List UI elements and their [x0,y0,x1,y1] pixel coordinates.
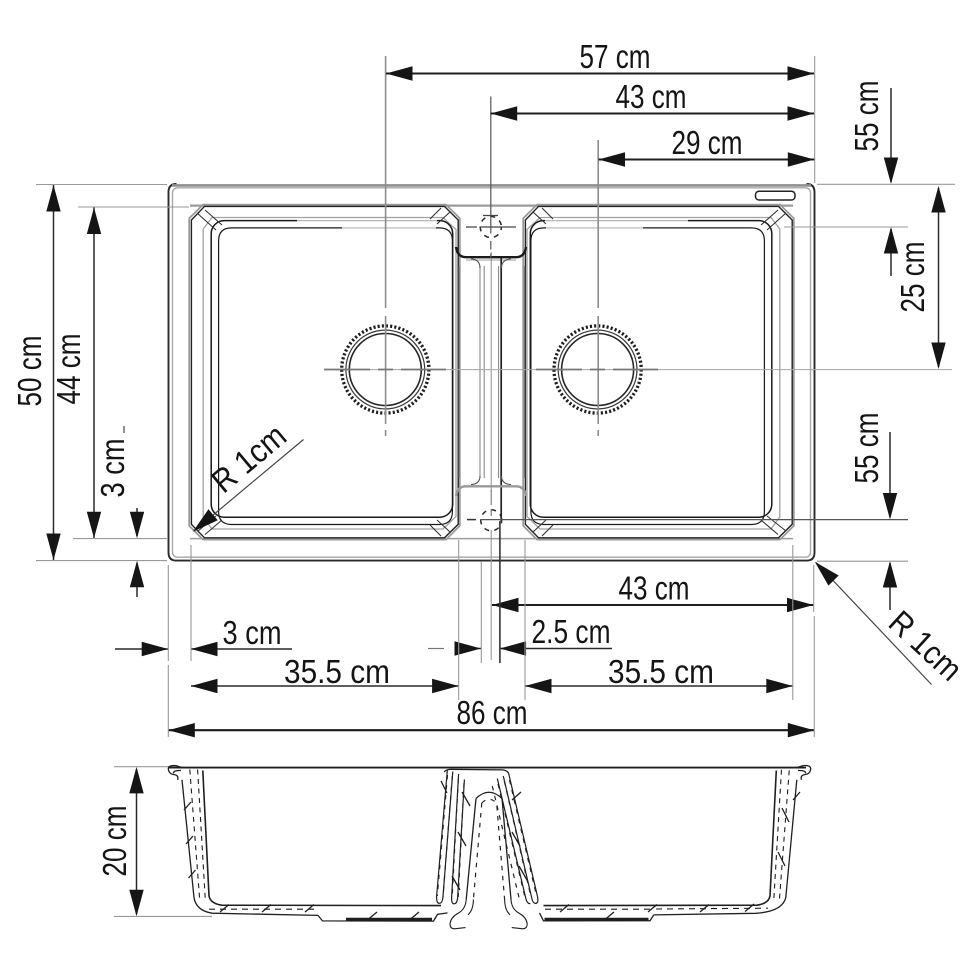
svg-text:86 cm: 86 cm [457,694,528,731]
svg-text:50 cm: 50 cm [11,336,48,407]
svg-text:2.5 cm: 2.5 cm [532,613,611,650]
svg-text:57 cm: 57 cm [580,38,651,75]
svg-text:43 cm: 43 cm [619,570,690,607]
svg-text:25 cm: 25 cm [894,242,931,313]
svg-text:55 cm: 55 cm [848,413,885,484]
svg-text:20 cm: 20 cm [96,806,133,877]
svg-text:35.5 cm: 35.5 cm [608,653,714,690]
svg-text:55 cm: 55 cm [848,81,885,152]
svg-text:3 cm: 3 cm [223,614,282,651]
svg-text:3 cm: 3 cm [94,439,131,498]
svg-text:44 cm: 44 cm [50,334,87,405]
svg-text:43 cm: 43 cm [616,78,687,115]
svg-text:35.5 cm: 35.5 cm [284,653,390,690]
svg-text:29 cm: 29 cm [672,124,743,161]
